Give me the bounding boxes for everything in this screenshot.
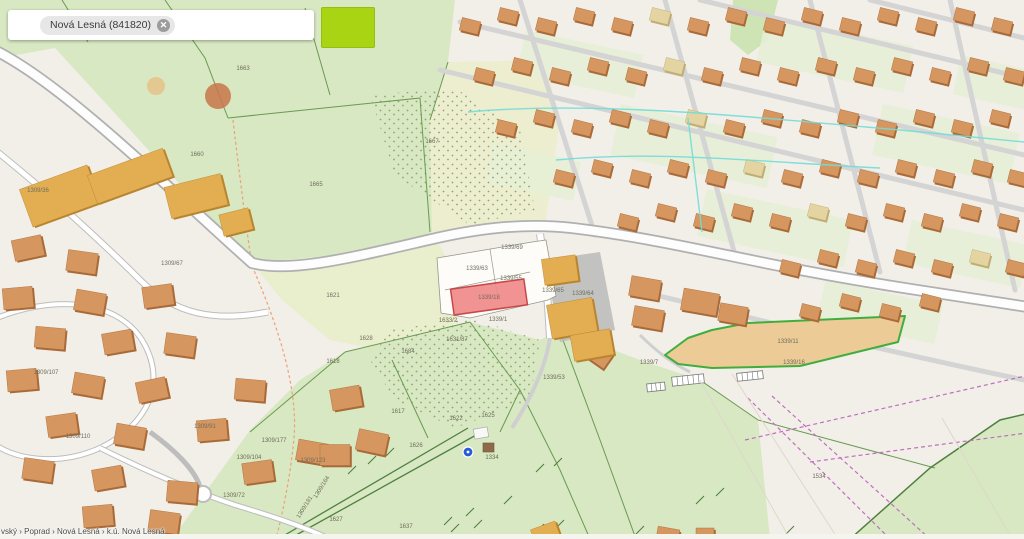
parcel-label: 1665 [309,182,323,188]
parcel-label: 1309/36 [27,188,49,194]
poi-marker-icon[interactable] [463,447,473,457]
parcel-label: 1618 [326,359,340,365]
color-swatch[interactable] [321,7,375,48]
chip-clear-icon[interactable]: ✕ [157,19,170,32]
parcel-label: 1309/107 [33,370,59,376]
parcel-label: 1339/69 [501,245,523,251]
parcel-label: 1626 [409,443,423,449]
parcel-label: 1309/67 [161,261,183,267]
search-chip-label: Nová Lesná (841820) [50,20,151,31]
map-app-window: 1339/11 1339/18 1309/361309/671660166316… [0,0,1024,539]
breadcrumb: vský › Poprad › Nová Lesná › k.ú. Nová L… [1,527,165,536]
parcel-label: 1637 [399,524,413,530]
parcel-label: 1663 [236,66,250,72]
parcel-label: 1633/2 [439,318,458,324]
parcel-label: 1334 [485,455,499,461]
small-structure [473,427,489,439]
parcel-label: 1622 [449,416,463,422]
parcel-label: 1339/63 [466,266,488,272]
parcel-label: 1339/7 [640,360,659,366]
map-canvas[interactable]: 1339/11 1339/18 1309/361309/671660166316… [0,0,1024,539]
parcel-label: 1621 [326,293,340,299]
parcel-label: 1339/11 [777,339,799,345]
parcel-label: 1339/16 [783,360,805,366]
parcel-label: 1339/65 [542,288,564,294]
parcel-label: 1625 [481,413,495,419]
parcel-label: 1339/18 [478,295,500,301]
search-bar[interactable]: Nová Lesná (841820) ✕ [8,10,314,40]
parcel-label: 1339/1 [489,317,508,323]
parcel-label: 1617 [391,409,405,415]
shed [483,443,494,452]
search-chip[interactable]: Nová Lesná (841820) ✕ [40,16,175,35]
parcel-label: 1339/55 [500,276,522,282]
parcel-label: 1667 [425,139,439,145]
parcel-label: 1628 [359,336,373,342]
parcel-label: 1627 [329,517,343,523]
parcel-label: 1631/87 [446,337,468,343]
parcel-label: 1309/72 [223,493,245,499]
parcel-label: 1339/64 [572,291,594,297]
parcel-label: 1309/91 [194,424,216,430]
parcel-label: 1684 [401,349,415,355]
parcel-label: 1534 [812,474,826,480]
parcel-label: 1309/123 [300,458,326,464]
parcel-label: 1309/110 [66,434,91,440]
parcel-label: 1309/177 [261,438,287,444]
parcel-label: 1339/53 [543,375,565,381]
parcel-label: 1309/104 [236,455,262,461]
parcel-label: 1660 [190,152,204,158]
